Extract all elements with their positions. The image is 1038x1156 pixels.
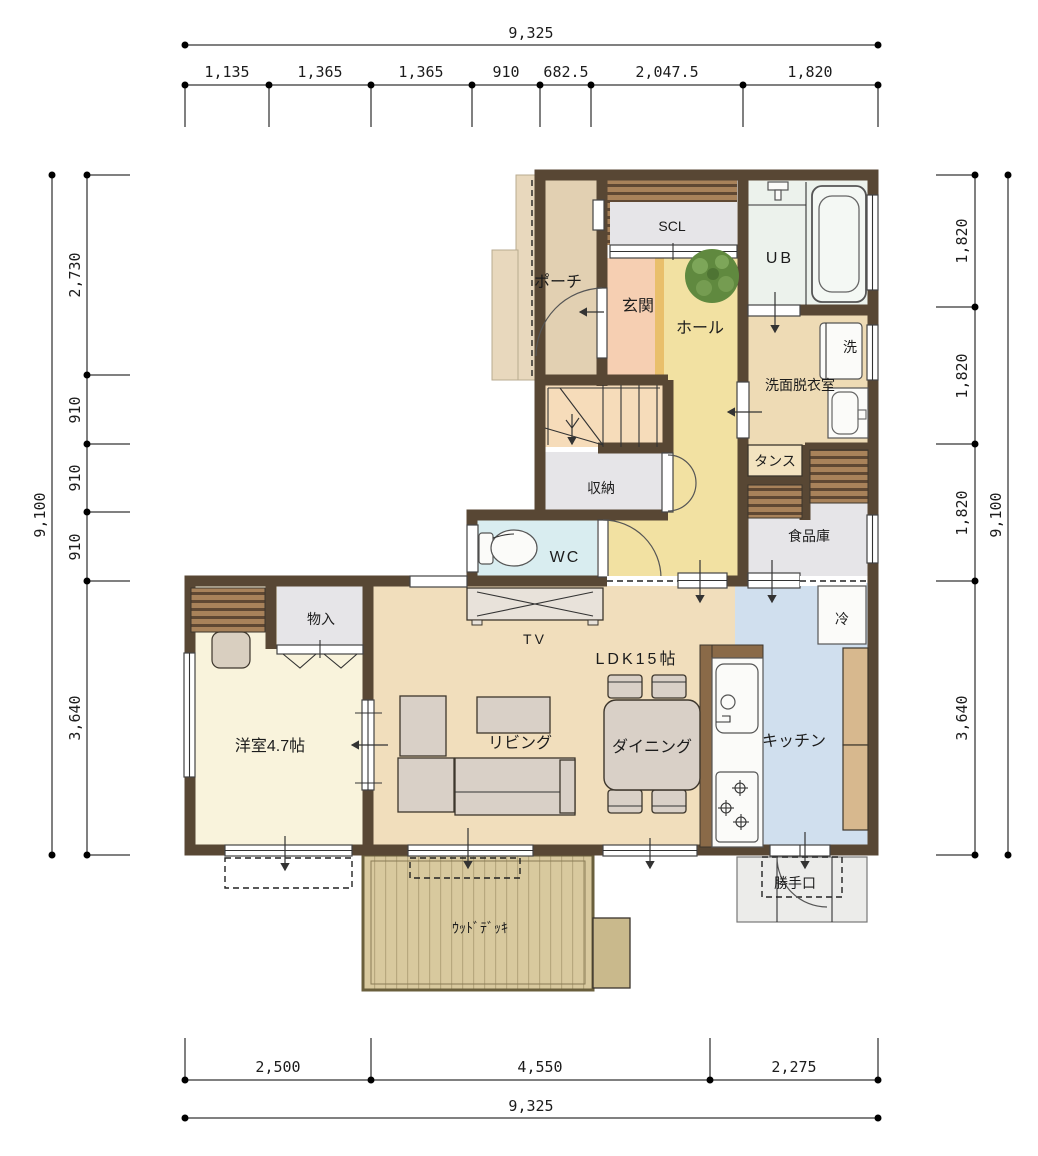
label-wood-deck: ｳｯﾄﾞﾃﾞｯｷ	[452, 920, 508, 936]
kitchen-counter	[700, 645, 763, 847]
label-ldk: LDK15帖	[596, 650, 679, 668]
scl-top-hatch	[610, 180, 737, 202]
deck-step	[593, 918, 630, 988]
window-living-bottom	[408, 845, 533, 856]
window-pantry-right	[867, 515, 878, 563]
dim-top-4: 682.5	[543, 63, 588, 81]
label-washer: 洗	[843, 339, 857, 355]
room-genkan-floor	[607, 258, 655, 383]
dim-top-total: 9,325	[508, 24, 553, 42]
window-porch-side	[593, 200, 604, 230]
window-wc-left	[467, 525, 478, 572]
dim-left-2: 910	[66, 464, 84, 491]
dim-left-0: 2,730	[66, 252, 84, 297]
window-living-top	[410, 576, 467, 587]
dim-top-3: 910	[492, 63, 519, 81]
hall-wc-front-floor	[608, 517, 668, 583]
label-ub: UB	[766, 250, 794, 267]
bathtub	[812, 186, 866, 302]
dim-top-1: 1,365	[297, 63, 342, 81]
label-washroom: 洗面脱衣室	[765, 377, 835, 393]
dimensions-bottom: 2,500 4,550 2,275 9,325	[182, 1038, 882, 1122]
label-scl: SCL	[658, 218, 685, 234]
western-counter-hatch	[191, 588, 265, 632]
western-desk	[212, 632, 250, 668]
label-kitchen: キッチン	[762, 733, 826, 750]
dim-bottom-0: 2,500	[255, 1058, 300, 1076]
dim-left-3: 910	[66, 533, 84, 560]
label-monoire: 物入	[307, 611, 335, 627]
label-back-door: 勝手口	[774, 875, 816, 891]
dim-left-1: 910	[66, 396, 84, 423]
vanity-sink	[828, 388, 868, 438]
window-western-bottom	[225, 845, 352, 856]
dim-left-4: 3,640	[66, 695, 84, 740]
window-western-left	[184, 653, 195, 777]
label-porch: ポーチ	[534, 273, 582, 291]
dim-right-0: 1,820	[953, 218, 971, 263]
label-tv: TV	[523, 631, 547, 647]
label-western-room: 洋室4.7帖	[235, 737, 305, 755]
closet-hatch-left	[748, 485, 802, 518]
coffee-table	[477, 697, 550, 733]
floor-plan-page: SCL ポーチ 玄関 ホール UB 洗 洗面脱衣室 タンス 収納 WC 食品庫 …	[0, 0, 1038, 1151]
label-wc: WC	[550, 549, 581, 566]
label-tansu: タンス	[754, 453, 796, 469]
porch-step	[492, 250, 518, 380]
hall-corridor-floor	[668, 385, 738, 583]
kitchen-back-counter	[843, 648, 868, 830]
label-dining: ダイニング	[612, 738, 692, 756]
dimensions-right: 1,820 1,820 1,820 3,640 9,100	[936, 172, 1012, 859]
dim-top-0: 1,135	[204, 63, 249, 81]
dim-top-2: 1,365	[398, 63, 443, 81]
toilet	[479, 530, 537, 566]
dim-top-6: 1,820	[787, 63, 832, 81]
dim-right-1: 1,820	[953, 353, 971, 398]
dim-bottom-2: 2,275	[771, 1058, 816, 1076]
dim-right-total: 9,100	[987, 492, 1005, 537]
label-hall: ホール	[676, 320, 724, 337]
label-pantry: 食品庫	[788, 528, 830, 544]
stairs-floor	[545, 385, 663, 447]
door-kitchen-back	[770, 845, 830, 856]
dimensions-left: 9,100 2,730 910 910 910 3,640	[31, 172, 130, 859]
dim-bottom-total: 9,325	[508, 1097, 553, 1115]
label-living: リビング	[488, 734, 552, 752]
dimensions-top: 9,325 1,135 1,365 1,365 910 682.5 2,047.…	[182, 24, 882, 127]
window-washroom-right	[867, 325, 878, 380]
dim-right-3: 3,640	[953, 695, 971, 740]
genkan-step-edge	[655, 258, 664, 383]
dim-right-2: 1,820	[953, 490, 971, 535]
window-ub-right	[867, 195, 878, 290]
label-genkan: 玄関	[622, 297, 654, 315]
tv-board	[467, 588, 603, 625]
floor-plan-svg: SCL ポーチ 玄関 ホール UB 洗 洗面脱衣室 タンス 収納 WC 食品庫 …	[0, 0, 1038, 1151]
plant	[685, 249, 739, 303]
dim-top-5: 2,047.5	[635, 63, 698, 81]
western-room-eaves-dashed	[225, 858, 352, 888]
dim-bottom-1: 4,550	[517, 1058, 562, 1076]
dim-left-total: 9,100	[31, 492, 49, 537]
closet-hatch-right	[810, 450, 868, 503]
label-fridge: 冷	[835, 611, 849, 627]
label-storage: 収納	[587, 480, 615, 496]
